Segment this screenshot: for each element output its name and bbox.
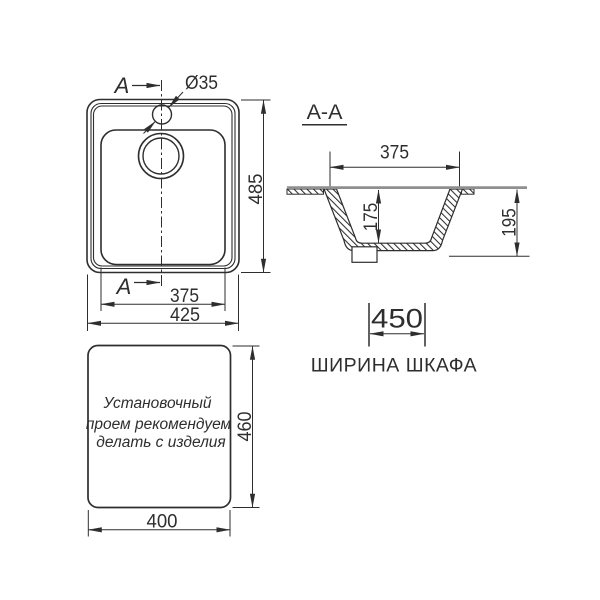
countertop-section-right (462, 189, 475, 194)
sink-outer-outline (87, 100, 239, 273)
dim-485: 485 (241, 100, 271, 273)
dim-425: 425 (88, 275, 239, 332)
dim-label-485: 485 (246, 174, 267, 205)
technical-drawing: A A Ø35 485 375 (0, 0, 600, 600)
section-title-label: А-А (307, 100, 344, 124)
cabinet-width-value: 450 (371, 304, 423, 334)
dim-195: 195 (449, 190, 530, 257)
dim-175: 175 (361, 190, 382, 243)
dim-460: 460 (233, 346, 260, 508)
section-view: А-А 375 175 195 (287, 100, 530, 262)
faucet-dia-label: Ø35 (185, 73, 218, 94)
dim-375-section: 375 (330, 143, 460, 188)
sink-bowl-outline (101, 130, 225, 265)
sink-rim-line-1 (91, 104, 235, 269)
top-view: A A Ø35 485 375 (87, 73, 271, 331)
dim-label-175: 175 (361, 203, 382, 232)
drawing-canvas: A A Ø35 485 375 (0, 0, 600, 600)
section-cut-label-top: A (113, 73, 160, 98)
dim-label-400: 400 (147, 512, 178, 533)
dim-label-195: 195 (500, 208, 521, 237)
dim-label-425: 425 (170, 305, 200, 326)
section-label-a-bottom: A (115, 274, 132, 299)
section-label-a-top: A (113, 73, 130, 98)
dim-label-375: 375 (170, 286, 199, 307)
section-cut-label-bottom: A (115, 274, 160, 299)
faucet-leader-lower (144, 121, 156, 133)
drain-stub (352, 247, 377, 262)
bowl-cross-section (324, 189, 463, 251)
section-title: А-А (302, 100, 347, 125)
cutout-note-line-2: проем рекомендуем (86, 416, 232, 433)
dim-400: 400 (88, 510, 230, 537)
dim-label-460: 460 (235, 412, 256, 442)
cutout-view: Установочный проем рекомендуем делать с … (86, 346, 260, 537)
cabinet-width-block: 450 ШИРИНА ШКАФА (311, 303, 477, 377)
countertop-section-left (287, 189, 324, 194)
cutout-note-line-1: Установочный (102, 395, 211, 412)
cutout-note-line-3: делать с изделия (96, 434, 225, 451)
cabinet-width-caption: ШИРИНА ШКАФА (311, 355, 477, 377)
dim-label-375s: 375 (380, 143, 409, 164)
